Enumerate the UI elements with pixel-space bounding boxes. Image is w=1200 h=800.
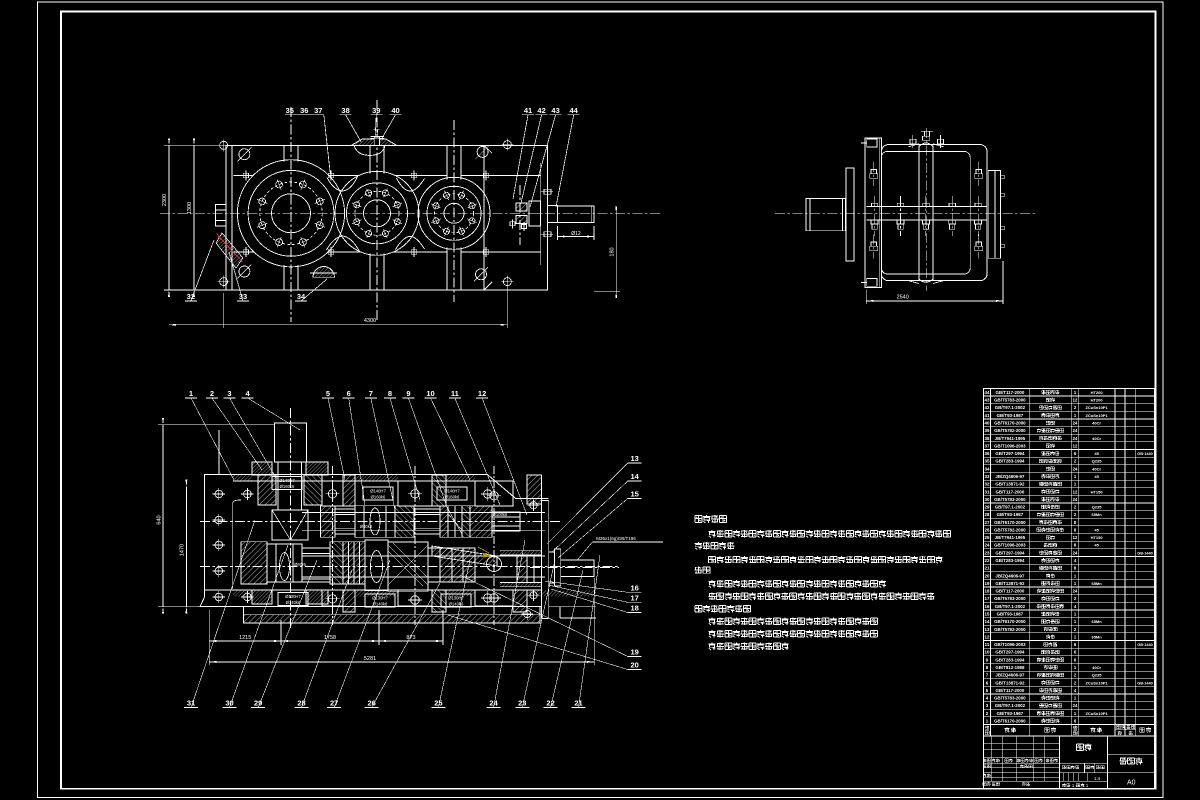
svg-text:31: 31 [187, 699, 195, 708]
svg-text:37: 37 [985, 443, 990, 448]
svg-text:14: 14 [985, 619, 990, 624]
svg-text:24: 24 [1073, 421, 1078, 426]
svg-text:Q235: Q235 [1092, 459, 1103, 464]
svg-text:GB/T117-2000: GB/T117-2000 [995, 390, 1024, 395]
svg-text:20: 20 [985, 573, 990, 578]
svg-text:11: 11 [451, 389, 459, 398]
svg-text:42: 42 [985, 405, 990, 410]
svg-text:GB/T283-1994: GB/T283-1994 [995, 657, 1025, 662]
svg-text:10: 10 [426, 389, 434, 398]
svg-text:Ø80r6: Ø80r6 [294, 562, 306, 567]
svg-text:24: 24 [1073, 550, 1078, 555]
svg-text:GB/T97.1-2002: GB/T97.1-2002 [995, 505, 1026, 510]
svg-text:7: 7 [369, 389, 373, 398]
svg-text:GB/T93-1987: GB/T93-1987 [997, 612, 1024, 617]
svg-text:39: 39 [372, 106, 380, 115]
svg-text:GB/T97.1-2002: GB/T97.1-2002 [995, 405, 1026, 410]
svg-text:23: 23 [985, 550, 990, 555]
svg-text:24: 24 [1073, 436, 1078, 441]
svg-text:20: 20 [631, 661, 639, 670]
svg-text:65Mn: 65Mn [1091, 634, 1102, 639]
svg-text:17: 17 [985, 596, 990, 601]
svg-text:65Mn: 65Mn [1091, 512, 1102, 517]
svg-text:ZCuSn10P1: ZCuSn10P1 [1085, 413, 1108, 418]
svg-text:43: 43 [985, 398, 990, 403]
svg-text:HT200: HT200 [1091, 390, 1104, 395]
svg-text:24: 24 [1073, 703, 1078, 708]
svg-text:JB/ZQ4606-97: JB/ZQ4606-97 [995, 673, 1025, 678]
svg-text:ZCuSn10P1: ZCuSn10P1 [1085, 711, 1108, 716]
svg-text:GB/T5783-2000: GB/T5783-2000 [994, 497, 1026, 502]
svg-text:GB/T5783-2000: GB/T5783-2000 [994, 696, 1026, 701]
svg-text:GB/T283-1994: GB/T283-1994 [995, 459, 1025, 464]
svg-text:40Cr: 40Cr [1092, 421, 1101, 426]
svg-text:44: 44 [985, 390, 990, 395]
svg-text:6: 6 [347, 389, 351, 398]
svg-text:HT200: HT200 [1091, 398, 1104, 403]
svg-text:GB/T5783-2000: GB/T5783-2000 [994, 398, 1026, 403]
svg-text:JB/T7941-1995: JB/T7941-1995 [995, 535, 1026, 540]
svg-text:17: 17 [631, 593, 639, 602]
svg-text:GB/T1096-2003: GB/T1096-2003 [994, 443, 1026, 448]
svg-text:Ø140k6: Ø140k6 [373, 602, 388, 607]
svg-text:12: 12 [985, 634, 990, 639]
svg-text:40Cr: 40Cr [1092, 665, 1101, 670]
svg-text:45: 45 [1094, 543, 1099, 548]
svg-text:25: 25 [985, 535, 990, 540]
svg-text:Ø140H7: Ø140H7 [370, 489, 386, 494]
svg-text:40Cr: 40Cr [1092, 436, 1101, 441]
svg-text:33: 33 [239, 292, 247, 301]
svg-text:1470: 1470 [180, 544, 186, 556]
svg-text:GB/T13871-92: GB/T13871-92 [995, 482, 1025, 487]
svg-text:12: 12 [478, 389, 486, 398]
svg-text:1:4: 1:4 [1094, 776, 1101, 781]
svg-text:1: 1 [189, 389, 193, 398]
svg-text:37: 37 [314, 106, 322, 115]
svg-text:35: 35 [286, 106, 294, 115]
svg-text:GB/T297-1994: GB/T297-1994 [995, 650, 1025, 655]
svg-text:30: 30 [985, 497, 990, 502]
svg-text:GB/T93-1987: GB/T93-1987 [997, 711, 1024, 716]
svg-text:16: 16 [631, 583, 639, 592]
svg-text:24: 24 [1073, 466, 1078, 471]
svg-text:2300: 2300 [162, 194, 168, 206]
svg-text:Q235: Q235 [1092, 505, 1103, 510]
svg-text:45: 45 [1094, 451, 1099, 456]
svg-text:GB/T97.1-2002: GB/T97.1-2002 [995, 604, 1026, 609]
svg-text:180: 180 [610, 247, 616, 256]
svg-text:24: 24 [1073, 428, 1078, 433]
svg-text:HT150: HT150 [1091, 489, 1104, 494]
svg-text:5281: 5281 [364, 656, 376, 662]
svg-text:18: 18 [631, 604, 639, 613]
svg-text:36: 36 [300, 106, 308, 115]
svg-text:40Cr: 40Cr [1092, 466, 1101, 471]
svg-text:25: 25 [434, 699, 442, 708]
svg-text:11: 11 [985, 642, 990, 647]
svg-text:33: 33 [985, 474, 990, 479]
svg-text:GB/T5782-2000: GB/T5782-2000 [994, 528, 1026, 533]
svg-text:4300: 4300 [364, 318, 376, 324]
svg-text:12: 12 [1073, 535, 1078, 540]
svg-text:14: 14 [631, 472, 640, 481]
svg-text:GB·1440: GB·1440 [1137, 643, 1152, 647]
svg-text:Ø160k6: Ø160k6 [280, 484, 295, 489]
svg-text:26: 26 [985, 528, 990, 533]
svg-text:32: 32 [985, 482, 990, 487]
svg-text:GB/T6170-2000: GB/T6170-2000 [994, 719, 1026, 724]
svg-text:ZCuSn10P1: ZCuSn10P1 [1085, 680, 1108, 685]
svg-text:GB/T812-1988: GB/T812-1988 [995, 665, 1025, 670]
svg-text:GB/T6170-2000: GB/T6170-2000 [994, 421, 1026, 426]
svg-text:41: 41 [985, 413, 990, 418]
svg-text:44: 44 [570, 106, 579, 115]
svg-text:1758: 1758 [324, 635, 336, 641]
svg-text:Ø140H7: Ø140H7 [279, 478, 295, 483]
svg-text:27: 27 [985, 520, 990, 525]
svg-text:GB/T13871-92: GB/T13871-92 [995, 581, 1025, 586]
svg-text:24: 24 [985, 543, 990, 548]
svg-text:28: 28 [985, 512, 990, 517]
svg-text:35: 35 [985, 459, 990, 464]
svg-text:A0: A0 [1127, 780, 1136, 787]
svg-text:12: 12 [1073, 489, 1078, 494]
svg-text:Ø12: Ø12 [571, 231, 581, 237]
svg-text:24: 24 [1073, 589, 1078, 594]
svg-text:38: 38 [341, 106, 349, 115]
svg-text:22: 22 [985, 558, 990, 563]
svg-text:3: 3 [227, 389, 231, 398]
svg-text:Ø140H7: Ø140H7 [444, 489, 460, 494]
svg-text:31: 31 [985, 489, 990, 494]
svg-text:GB/T13871-92: GB/T13871-92 [995, 680, 1025, 685]
svg-text:ZCuSn10P1: ZCuSn10P1 [1085, 405, 1108, 410]
svg-text:23: 23 [518, 699, 526, 708]
svg-text:12: 12 [1073, 398, 1078, 403]
svg-text:Ø140k6: Ø140k6 [449, 602, 464, 607]
svg-text:1215: 1215 [239, 635, 251, 641]
svg-text:JB/ZQ4606-97: JB/ZQ4606-97 [995, 474, 1025, 479]
svg-text:JB/T7941-1995: JB/T7941-1995 [995, 436, 1026, 441]
svg-text:13: 13 [631, 454, 639, 463]
svg-text:GB/T283-1994: GB/T283-1994 [995, 558, 1025, 563]
svg-text:GB/T117-2000: GB/T117-2000 [995, 589, 1024, 594]
svg-text:18: 18 [985, 589, 990, 594]
svg-text:GB/T97.1-2002: GB/T97.1-2002 [995, 703, 1026, 708]
svg-text:16: 16 [985, 604, 990, 609]
svg-text:45: 45 [1094, 474, 1099, 479]
svg-text:Ø160k6: Ø160k6 [371, 495, 386, 500]
svg-text:GB/T1096-2003: GB/T1096-2003 [994, 642, 1026, 647]
svg-text:26: 26 [368, 699, 376, 708]
svg-text:GB/T297-1994: GB/T297-1994 [995, 550, 1025, 555]
svg-text:HT150: HT150 [1091, 535, 1104, 540]
svg-text:GB/T6170-2000: GB/T6170-2000 [994, 520, 1026, 525]
svg-text:Ø160k6: Ø160k6 [445, 495, 460, 500]
svg-text:9: 9 [406, 389, 410, 398]
svg-text:8: 8 [388, 389, 392, 398]
svg-text:GB/T5783-2000: GB/T5783-2000 [994, 596, 1026, 601]
svg-text:GB/T1096-2003: GB/T1096-2003 [994, 543, 1026, 548]
svg-text:GB/T297-1994: GB/T297-1994 [995, 451, 1025, 456]
svg-text:38: 38 [985, 436, 990, 441]
svg-text:12: 12 [1073, 443, 1078, 448]
svg-text:GB·1440: GB·1440 [1137, 551, 1152, 555]
svg-text:GB/T117-2000: GB/T117-2000 [995, 688, 1024, 693]
svg-text:Ø60k6: Ø60k6 [360, 524, 373, 529]
svg-text:15: 15 [631, 490, 639, 499]
svg-text:34: 34 [985, 466, 990, 471]
svg-text:JB/ZQ4606-97: JB/ZQ4606-97 [995, 573, 1025, 578]
svg-text:24: 24 [1073, 497, 1078, 502]
svg-text:41: 41 [524, 106, 532, 115]
svg-text:Ø130H7: Ø130H7 [285, 594, 301, 599]
svg-text:GB/T93-1987: GB/T93-1987 [997, 512, 1024, 517]
svg-text:Ø100k6: Ø100k6 [493, 512, 508, 517]
svg-text:1300: 1300 [187, 202, 193, 214]
svg-text:29: 29 [985, 505, 990, 510]
svg-text:GB·1440: GB·1440 [1137, 452, 1152, 456]
svg-text:GB/T117-2000: GB/T117-2000 [995, 489, 1024, 494]
svg-text:43: 43 [551, 106, 559, 115]
svg-text:Ø130H7: Ø130H7 [372, 596, 388, 601]
svg-text:13: 13 [985, 627, 990, 632]
svg-text:10: 10 [985, 650, 990, 655]
svg-text:65Mn: 65Mn [1091, 619, 1102, 624]
svg-text:19: 19 [985, 581, 990, 586]
svg-text:40: 40 [391, 106, 399, 115]
svg-text:45: 45 [1094, 528, 1099, 533]
svg-text:36: 36 [985, 451, 990, 456]
svg-text:GB/T93-1987: GB/T93-1987 [997, 413, 1024, 418]
svg-text:40: 40 [985, 421, 990, 426]
svg-text:5: 5 [326, 389, 330, 398]
svg-text:15: 15 [985, 612, 990, 617]
svg-text:2: 2 [210, 389, 214, 398]
svg-text:GB/T5782-2000: GB/T5782-2000 [994, 428, 1026, 433]
svg-text:39: 39 [985, 428, 990, 433]
svg-text:2540: 2540 [897, 295, 909, 301]
svg-text:22: 22 [546, 699, 554, 708]
svg-text:GB/T6170-2000: GB/T6170-2000 [994, 619, 1026, 624]
svg-text:34: 34 [297, 292, 306, 301]
svg-text:Ø140k6: Ø140k6 [286, 600, 301, 605]
svg-text:M36x1(6g)GB/T196: M36x1(6g)GB/T196 [596, 536, 636, 541]
svg-text:21: 21 [985, 566, 990, 571]
svg-text:65Mn: 65Mn [1091, 581, 1102, 586]
svg-text:42: 42 [537, 106, 545, 115]
svg-text:GB/T5782-2000: GB/T5782-2000 [994, 627, 1026, 632]
svg-text:GB·1440: GB·1440 [1137, 681, 1152, 685]
svg-text:Q235: Q235 [1092, 673, 1103, 678]
svg-text:640: 640 [156, 515, 162, 524]
svg-text:19: 19 [631, 647, 639, 656]
